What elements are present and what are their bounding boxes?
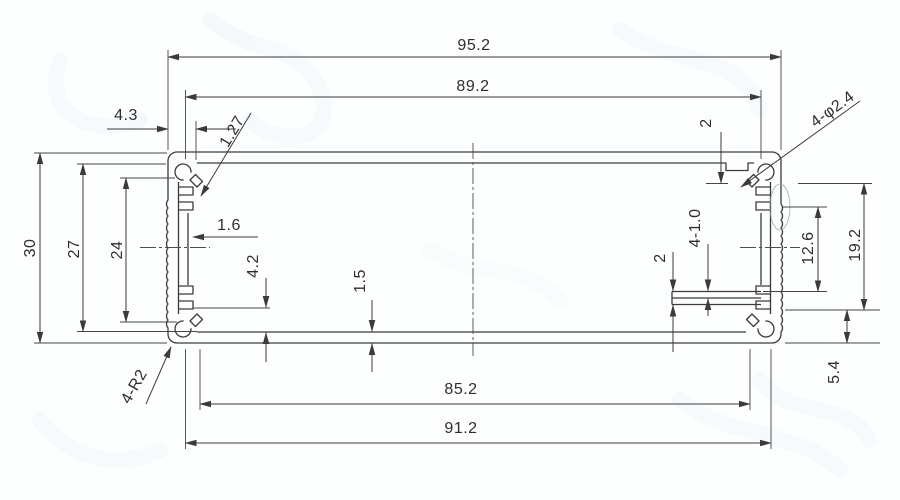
dim-inner-height-label: 27	[66, 240, 84, 259]
dim-wall-span-label: 24	[109, 241, 127, 260]
screw-boss-top-right	[758, 164, 774, 180]
dim-base-offset-label: 5.4	[826, 360, 844, 384]
right-teeth	[756, 187, 771, 309]
dim-top-step-label: 2	[698, 118, 716, 127]
dim-top-opening-label: 89.2	[456, 78, 489, 96]
dim-rail-offset-label: 12.6	[800, 231, 818, 264]
dim-bottom-opening-label: 85.2	[444, 381, 477, 399]
boss-tab-bottom-left	[190, 314, 203, 327]
boss-tab-bottom-right	[747, 314, 760, 327]
screw-boss-bottom-right	[758, 321, 774, 337]
dim-overall-height-label: 30	[22, 239, 40, 258]
dim-wall-thickness-label: 1.5	[352, 269, 370, 293]
watermark	[40, 20, 870, 470]
left-teeth	[179, 187, 194, 309]
dim-overall-width-label: 95.2	[457, 37, 490, 55]
leader-lines	[146, 101, 860, 404]
screw-boss-top-left	[175, 164, 191, 180]
dim-channel-width-label: 1.6	[217, 217, 241, 235]
centerline	[140, 143, 800, 356]
boss-tab-top-left	[190, 175, 203, 188]
boss-tab-top-right	[747, 175, 760, 188]
technical-drawing: 95.2 89.2 4.3 1.27 2 4-φ2.4 30 27 24 1.6…	[0, 0, 900, 500]
screw-boss-bottom-left	[175, 321, 191, 337]
dim-rail-pitch-label: 2	[652, 253, 670, 262]
dim-rail-height-label: 19.2	[847, 228, 865, 261]
pcb-rail	[672, 292, 761, 305]
dim-bottom-width-label: 91.2	[444, 420, 477, 438]
dim-card-slots-label: 4-1.0	[687, 209, 705, 248]
dim-floor-ledge-label: 4.2	[245, 254, 263, 278]
top-wall-inner	[197, 163, 754, 171]
dim-corner-boss-offset-label: 4.3	[114, 107, 138, 125]
profile-outline	[166, 152, 782, 343]
outer-shell	[166, 152, 782, 343]
